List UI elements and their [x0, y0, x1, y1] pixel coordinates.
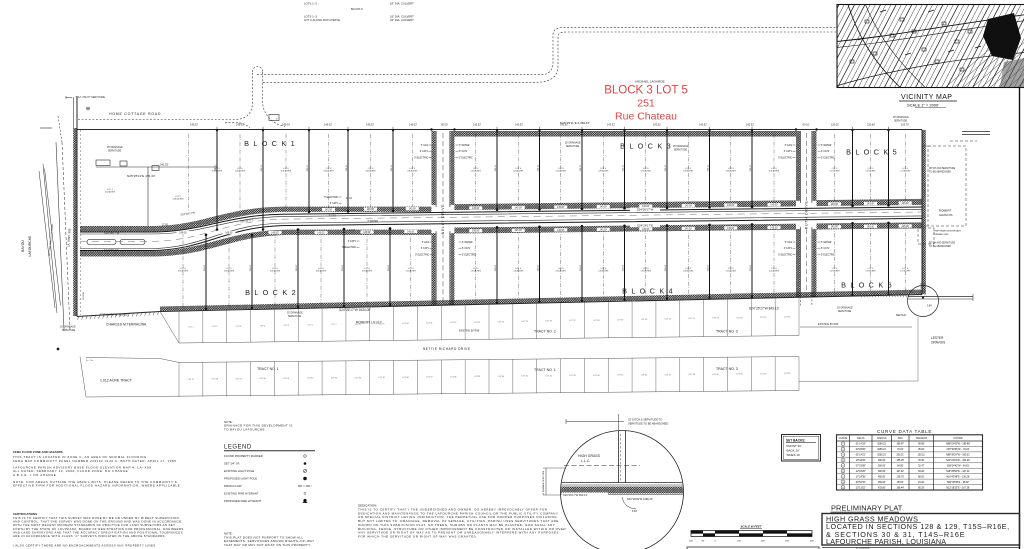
svg-text:17°24'38”: 17°24'38” [856, 476, 866, 478]
svg-text:19°44'32”: 19°44'32” [856, 460, 866, 462]
svg-text:TEMPORARY AGGREGATE: TEMPORARY AGGREGATE [933, 230, 961, 233]
svg-text:B L O C K 3: B L O C K 3 [620, 142, 672, 151]
svg-text:EXISTING FIRE HYDRANT: EXISTING FIRE HYDRANT [224, 492, 259, 496]
svg-text:0.80 ACRES: 0.80 ACRES [769, 270, 780, 273]
svg-text:5' ELECTRIC: 5' ELECTRIC [459, 157, 473, 159]
svg-text:0.80 ACRES: 0.80 ACRES [323, 170, 334, 173]
svg-text:53.92': 53.92' [918, 471, 925, 473]
svg-text:120.02': 120.02' [831, 124, 840, 127]
svg-text:38.03': 38.03' [897, 482, 904, 484]
svg-text:85.29': 85.29' [918, 487, 925, 489]
svg-text:0.80 ACRES: 0.80 ACRES [316, 270, 327, 273]
svg-text:70.04': 70.04' [897, 449, 904, 451]
svg-text:04°52'32”: 04°52'32” [856, 482, 866, 484]
svg-text:145.00': 145.00' [472, 231, 480, 233]
svg-text:LOT 13: LOT 13 [474, 322, 480, 324]
svg-text:0.80 ACRES: 0.80 ACRES [598, 170, 609, 173]
svg-text:145.00': 145.00' [600, 229, 608, 231]
svg-text:LOT 31: LOT 31 [283, 378, 289, 380]
svg-text:LOT 19: LOT 19 [617, 319, 623, 321]
svg-text:145.00': 145.00' [902, 203, 910, 205]
svg-text:LOT 18: LOT 18 [593, 320, 599, 322]
svg-text:145.00': 145.00' [902, 226, 910, 228]
svg-text:136.76': 136.76' [896, 476, 904, 478]
svg-text:LOT 25: LOT 25 [760, 317, 766, 319]
svg-text:155.05': 155.05' [896, 460, 904, 462]
svg-text:145.00': 145.00' [727, 228, 735, 230]
svg-text:0.80 ACRES: 0.80 ACRES [407, 170, 418, 173]
svg-text:145.00': 145.00' [685, 206, 693, 208]
svg-text:N88°39'24”W – 200.21': N88°39'24”W – 200.21' [946, 455, 971, 457]
svg-text:LOT 48: LOT 48 [689, 374, 695, 376]
svg-text:LOT 52: LOT 52 [784, 373, 790, 375]
svg-text:LOT 40: LOT 40 [498, 376, 504, 378]
svg-text:LOT 10: LOT 10 [402, 323, 408, 325]
svg-text:DRAIN FLOW: DRAIN FLOW [224, 484, 242, 488]
svg-text:0.80 ACRES: 0.80 ACRES [270, 270, 281, 273]
svg-text:3,49 0,53° 44’E: 3,49 0,53° 44’E [925, 182, 927, 196]
svg-text:5' ELECTRIC: 5' ELECTRIC [462, 254, 476, 256]
svg-text:145.00': 145.00' [770, 205, 778, 207]
svg-text:LAFOURCHE: LAFOURCHE [28, 235, 32, 257]
svg-text:64.85': 64.85' [897, 466, 904, 468]
svg-text:S24°28'17”E: S24°28'17”E [104, 248, 119, 252]
svg-text:01°14'21”: 01°14'21” [856, 455, 866, 457]
svg-text:LOT 6: LOT 6 [308, 325, 313, 327]
svg-text:I ALSO CERTIFY THERE ARE: I ALSO CERTIFY THERE ARE NO ENCROACHMENT… [13, 544, 156, 548]
svg-text:9.84': 9.84' [927, 306, 932, 308]
svg-text:400': 400' [810, 540, 815, 543]
svg-text:45.16': 45.16' [346, 198, 353, 200]
svg-text:25' DRAINAGE: 25' DRAINAGE [287, 312, 303, 315]
svg-text:145.00': 145.00' [363, 232, 371, 234]
svg-text:254.15': 254.15' [623, 164, 625, 171]
svg-text:145.02': 145.02' [409, 124, 418, 127]
svg-text:LOT 1: LOT 1 [188, 327, 193, 329]
svg-text:25' DRAINAGE: 25' DRAINAGE [107, 146, 123, 149]
svg-text:22°13'52”: 22°13'52” [856, 487, 866, 489]
svg-text:00°26'00”: 00°26'00” [856, 449, 866, 451]
svg-text:18” DIA. CULVERT: 18” DIA. CULVERT [390, 2, 414, 6]
svg-text:1.012 ACRE TRACT: 1.012 ACRE TRACT [100, 379, 133, 383]
svg-text:FOR WHICH THE SERVITUDE OR: FOR WHICH THE SERVITUDE OR RIGHT OF WAY … [358, 534, 478, 538]
svg-text:S24°26'17”W: S24°26'17”W [637, 208, 654, 212]
svg-text:BLOCK 3 LOT 5: BLOCK 3 LOT 5 [604, 85, 688, 97]
svg-text:1.081 ACRES: 1.081 ACRES [172, 198, 184, 201]
svg-text:1.07 ACRES: 1.07 ACRES [900, 170, 911, 173]
svg-text:EXISTING 50' R/W: EXISTING 50' R/W [818, 323, 839, 326]
svg-text:PROPOSED FIRE HYDRANT: PROPOSED FIRE HYDRANT [224, 499, 262, 503]
svg-text:LOT 20: LOT 20 [641, 319, 647, 321]
svg-text:L.L.C.: L.L.C. [581, 459, 590, 463]
svg-text:5' ELECTRIC: 5' ELECTRIC [778, 157, 792, 159]
svg-text:HIGH GRASS: HIGH GRASS [578, 454, 601, 458]
svg-text:145.00': 145.00' [515, 230, 523, 232]
svg-text:N04°36'05”E – 38.02': N04°36'05”E – 38.02' [947, 482, 970, 484]
svg-text:LOT 23: LOT 23 [712, 318, 718, 320]
svg-text:5' WATER: 5' WATER [821, 144, 832, 147]
svg-text:0.80 ACRES: 0.80 ACRES [598, 270, 609, 273]
svg-text:32.47': 32.47' [918, 466, 925, 468]
svg-text:254.15': 254.15' [580, 164, 582, 171]
svg-text:N25°25'11”E 2,359.67’: N25°25'11”E 2,359.67’ [560, 121, 590, 125]
svg-text:142.52': 142.52' [515, 124, 524, 127]
svg-text:5' GAS: 5' GAS [785, 144, 793, 147]
svg-text:25' DRAINAGE: 25' DRAINAGE [673, 145, 689, 148]
svg-text:0.80 ACRES: 0.80 ACRES [683, 270, 694, 273]
svg-text:TRACT NO. 3: TRACT NO. 3 [716, 367, 738, 371]
svg-text:254.15': 254.15' [215, 164, 217, 171]
svg-text:5' ELECTRIC: 5' ELECTRIC [821, 254, 835, 256]
svg-text:LOT 38: LOT 38 [450, 376, 456, 378]
svg-text:145.02': 145.02' [190, 124, 199, 127]
svg-text:LOT 42: LOT 42 [545, 375, 551, 377]
svg-text:BACK 10': BACK 10' [787, 449, 800, 453]
svg-text:N12°18'23”E – 167.39': N12°18'23”E – 167.39' [946, 487, 970, 489]
svg-text:LOT 43: LOT 43 [569, 375, 575, 377]
svg-text:5' WATER: 5' WATER [462, 241, 473, 244]
svg-text:145.00': 145.00' [867, 226, 875, 228]
svg-text:LOT 39: LOT 39 [474, 376, 480, 378]
svg-text:PRELIMINARY PLAT: PRELIMINARY PLAT [831, 504, 903, 513]
svg-text:NELLY DRIVE: NELLY DRIVE [441, 204, 445, 235]
svg-text:25' DRAINAGE SERVITUDE: 25' DRAINAGE SERVITUDE [542, 470, 545, 495]
svg-text:99.98': 99.98' [918, 444, 925, 446]
svg-text:6' CATV: 6' CATV [348, 240, 357, 243]
svg-text:LOT 9: LOT 9 [379, 323, 384, 325]
svg-text:LOT 14: LOT 14 [498, 321, 504, 323]
svg-text:VICINITY MAP: VICINITY MAP [901, 94, 952, 101]
svg-text:60.00': 60.00' [441, 124, 448, 127]
svg-text:LOT 5: LOT 5 [284, 325, 289, 327]
svg-text:THAT MAY OR MAY NOT EXIST: THAT MAY OR MAY NOT EXIST ON THIS PROPER… [224, 543, 311, 547]
svg-text:LOT 44: LOT 44 [593, 375, 599, 377]
svg-text:60.01': 60.01' [803, 124, 810, 127]
svg-text:FRONT 20': FRONT 20' [787, 444, 802, 448]
svg-text:250.00': 250.00' [538, 264, 540, 271]
svg-text:LAFOURCHE PARISH, LOUISIANA: LAFOURCHE PARISH, LOUISIANA [826, 537, 946, 546]
svg-text:6' CATV: 6' CATV [784, 247, 793, 250]
svg-text:0.80 ACRES: 0.80 ACRES [235, 170, 246, 173]
svg-text:SERVITUDE: SERVITUDE [62, 330, 76, 332]
svg-text:5' ELECTRIC: 5' ELECTRIC [324, 197, 338, 199]
svg-text:145.00': 145.00' [685, 228, 693, 230]
svg-text:D— 7a: D— 7a [86, 360, 94, 362]
svg-text:200.21': 200.21' [896, 455, 904, 457]
svg-text:5' WATER: 5' WATER [459, 144, 470, 147]
svg-text:500.00': 500.00' [878, 471, 886, 473]
svg-text:NETTIE RICHARD DRIVE: NETTIE RICHARD DRIVE [423, 347, 470, 351]
svg-text:6' CATV: 6' CATV [421, 247, 430, 250]
svg-text:SCALE 1” = 2000': SCALE 1” = 2000' [907, 103, 939, 108]
svg-text:25' DRAINAGE: 25' DRAINAGE [893, 116, 909, 119]
svg-text:1.07 ACRES: 1.07 ACRES [900, 270, 911, 273]
svg-text:15' DRAINAGE: 15' DRAINAGE [60, 326, 76, 329]
svg-text:6' CATV: 6' CATV [459, 150, 468, 153]
svg-text:0.80 ACRES: 0.80 ACRES [641, 170, 652, 173]
svg-text:LOT 37: LOT 37 [426, 377, 432, 379]
svg-text:LOT 11: LOT 11 [426, 323, 432, 325]
svg-text:250.00': 250.00' [342, 264, 344, 271]
svg-text:0.80 ACRES: 0.80 ACRES [769, 170, 780, 173]
svg-text:01°14'19”: 01°14'19” [856, 444, 866, 446]
svg-text:254.15': 254.15' [346, 164, 348, 171]
svg-text:100.11': 100.11' [918, 455, 926, 457]
svg-text:0.80 ACRES: 0.80 ACRES [362, 270, 373, 273]
svg-text:27.00': 27.00' [162, 225, 169, 227]
svg-text:0.80 ACRES: 0.80 ACRES [683, 170, 694, 173]
svg-text:LOT 3 ALONG RUTH DRIVE: LOT 3 ALONG RUTH DRIVE [304, 18, 340, 22]
svg-text:1.07 ACRES: 1.07 ACRES [865, 270, 876, 273]
svg-text:A.B.F.E. = NO CHANGE: A.B.F.E. = NO CHANGE [13, 473, 56, 477]
svg-text:341.33': 341.33' [160, 163, 169, 167]
svg-text:6' CATV: 6' CATV [420, 150, 429, 153]
svg-text:LOT 7: LOT 7 [331, 324, 336, 326]
svg-text:N88°19'43”W – 199.98': N88°19'43”W – 199.98' [946, 444, 971, 446]
svg-text:LOT 16: LOT 16 [545, 321, 551, 323]
svg-text:8.84': 8.84' [632, 510, 638, 513]
svg-text:145.00': 145.00' [179, 233, 187, 235]
svg-text:145.00': 145.00' [770, 227, 778, 229]
svg-text:ARE IN ACCORDANCE WITH CLA: ARE IN ACCORDANCE WITH CLASS “C” SURVEYS… [13, 534, 166, 538]
svg-text:N87°29'35”W – 70.04': N87°29'35”W – 70.04' [947, 449, 970, 451]
svg-text:254.15': 254.15' [495, 164, 497, 171]
svg-text:5' ELECTRIC: 5' ELECTRIC [415, 254, 429, 256]
svg-text:145.00': 145.00' [282, 124, 291, 127]
svg-text:0.80 ACRES: 0.80 ACRES [281, 170, 292, 173]
svg-text:HOME COTTAGE ROAD: HOME COTTAGE ROAD [109, 112, 161, 116]
svg-text:LOT 49: LOT 49 [712, 374, 718, 376]
svg-text:1.07 ACRES: 1.07 ACRES [829, 270, 840, 273]
svg-text:142.52': 142.52' [653, 124, 662, 127]
svg-text:BAYOU: BAYOU [21, 240, 25, 252]
svg-text:250.00': 250.00' [708, 264, 710, 271]
svg-text:DITCH AND SERVITUDE: DITCH AND SERVITUDE [929, 167, 956, 170]
svg-text:142.52': 142.52' [607, 124, 616, 127]
svg-text:78.30': 78.30' [918, 460, 925, 462]
svg-text:SERVITUDE: SERVITUDE [674, 149, 688, 151]
svg-text:450.00': 450.00' [878, 476, 886, 478]
svg-text:60' R/W: 60' R/W [83, 291, 85, 300]
svg-text:LOT 24: LOT 24 [736, 317, 742, 319]
svg-text:CURVE: CURVE [839, 437, 848, 440]
svg-text:LOT 32: LOT 32 [307, 378, 313, 380]
svg-text:254.15': 254.15' [708, 164, 710, 171]
svg-text:433.80': 433.80' [878, 487, 886, 489]
svg-text:145.00': 145.00' [867, 203, 875, 205]
svg-text:9256.21': 9256.21' [877, 449, 886, 451]
svg-text:S24°18'39”W 1289.40’: S24°18'39”W 1289.40’ [627, 497, 653, 501]
svg-text:23' DITCH & SERVITUDE TO: 23' DITCH & SERVITUDE TO [628, 418, 662, 422]
svg-text:LOT 15: LOT 15 [522, 321, 528, 323]
svg-text:100': 100' [737, 541, 742, 543]
svg-text:S18°45'56”W – 107.21': S18°45'56”W – 107.21' [946, 471, 970, 473]
svg-text:LOT 46: LOT 46 [641, 375, 647, 377]
svg-text:4.04 ACRES: 4.04 ACRES [105, 191, 116, 194]
svg-text:251: 251 [637, 98, 655, 110]
svg-text:DELTA: DELTA [857, 437, 865, 440]
svg-text:EFFECTIVE FIRM FOR ADDITION: EFFECTIVE FIRM FOR ADDITIONAL FLOOD HAZA… [13, 484, 180, 488]
svg-text:B L O C K 4: B L O C K 4 [622, 287, 674, 296]
svg-text:6' CATV: 6' CATV [330, 202, 339, 205]
svg-text:0.80 ACRES: 0.80 ACRES [513, 170, 524, 173]
svg-text:LOT 21: LOT 21 [665, 319, 671, 321]
svg-text:SIDES 10': SIDES 10' [787, 453, 801, 457]
svg-text:254.15': 254.15' [261, 164, 263, 171]
svg-text:5' GAS: 5' GAS [422, 241, 430, 244]
svg-text:EXISTING 50' R/W: EXISTING 50' R/W [459, 330, 480, 333]
svg-text:145.00': 145.00' [831, 204, 839, 206]
svg-text:SERVITUDE: SERVITUDE [566, 146, 580, 148]
svg-text:5' WATER: 5' WATER [368, 220, 379, 223]
svg-text:S24°26'17”W 843.13’: S24°26'17”W 843.13’ [563, 493, 588, 497]
svg-text:120.60': 120.60' [867, 124, 876, 127]
svg-text:0.80 ACRES: 0.80 ACRES [556, 170, 567, 173]
svg-text:9256.21': 9256.21' [877, 455, 886, 457]
svg-text:107.42': 107.42' [896, 471, 904, 473]
svg-text:1.07 ACRES: 1.07 ACRES [829, 170, 840, 173]
svg-text:24” DIA. CULVERT: 24” DIA. CULVERT [390, 18, 414, 22]
svg-text:GRAVOIS: GRAVOIS [939, 213, 952, 217]
svg-text:0.80 ACRES: 0.80 ACRES [212, 170, 223, 173]
svg-text:S24°26'17”W 1634.08’: S24°26'17”W 1634.08’ [339, 308, 371, 312]
svg-text:LOT 45: LOT 45 [617, 375, 623, 377]
svg-text:254.15': 254.15' [307, 164, 309, 171]
svg-text:LOT 26: LOT 26 [784, 317, 790, 319]
svg-text:145.02': 145.02' [236, 124, 245, 127]
svg-text:0.80 ACRES: 0.80 ACRES [726, 270, 737, 273]
svg-text:B L O C K 5: B L O C K 5 [846, 148, 898, 157]
svg-text:TRACT NO. 1: TRACT NO. 1 [534, 368, 556, 372]
svg-text:25' DRAINAGE: 25' DRAINAGE [565, 142, 581, 145]
svg-text:FEMA MAP COMMUNITY PANEL N: FEMA MAP COMMUNITY PANEL NUMBER 225202 0… [13, 459, 176, 463]
svg-text:FEMA FLOOD ZONE AND HAZARD: FEMA FLOOD ZONE AND HAZARDS [13, 450, 63, 454]
svg-text:17.04': 17.04' [349, 230, 356, 232]
svg-text:145.00': 145.00' [407, 231, 415, 233]
svg-text:6' CATV: 6' CATV [784, 150, 793, 153]
svg-text:MICHAEL LAGARDE: MICHAEL LAGARDE [635, 80, 664, 84]
svg-text:Rue Chateau: Rue Chateau [615, 111, 677, 123]
svg-text:LOT 33: LOT 33 [331, 378, 337, 380]
svg-text:5' ELECTRIC: 5' ELECTRIC [778, 254, 792, 256]
svg-text:LOT 50: LOT 50 [736, 374, 742, 376]
svg-text:142.52': 142.52' [699, 124, 708, 127]
svg-text:145.00': 145.00' [225, 233, 233, 235]
svg-text:LESTER: LESTER [931, 336, 944, 340]
svg-text:250.00': 250.00' [296, 264, 298, 271]
svg-text:68.92': 68.92' [918, 476, 925, 478]
svg-text:199.87': 199.87' [896, 444, 904, 446]
svg-text:6' CATV: 6' CATV [821, 247, 830, 250]
svg-text:19.02': 19.02' [918, 482, 925, 484]
svg-text:6' CATV: 6' CATV [462, 247, 471, 250]
svg-text:300': 300' [785, 541, 790, 543]
svg-text:SERVITUDE: SERVITUDE [108, 150, 122, 152]
svg-text:250.00': 250.00' [495, 264, 497, 271]
svg-text:SCALE IN FEET: SCALE IN FEET [741, 525, 762, 529]
svg-text:0.80 ACRES: 0.80 ACRES [471, 270, 482, 273]
svg-text:145.00': 145.00' [367, 209, 375, 211]
svg-text:LOT 27: LOT 27 [188, 379, 194, 381]
svg-text:FOUND PROPERTY MARKER: FOUND PROPERTY MARKER [224, 454, 263, 458]
svg-text:5' GAS: 5' GAS [785, 241, 793, 244]
svg-text:LOT 51: LOT 51 [760, 373, 766, 375]
svg-text:TRACT NO. 3: TRACT NO. 3 [716, 330, 738, 334]
svg-text:254.15': 254.15' [750, 164, 752, 171]
svg-text:SET 3/4” I.R.: SET 3/4” I.R. [224, 462, 240, 466]
svg-text:145.00': 145.00' [515, 207, 523, 209]
svg-text:LOT 22: LOT 22 [689, 318, 695, 320]
svg-text:12' UTILITY SERVITUDE: 12' UTILITY SERVITUDE [78, 96, 105, 99]
svg-text:ARC: ARC [898, 437, 903, 440]
svg-text:100': 100' [689, 541, 694, 543]
svg-text:0.80 ACRES: 0.80 ACRES [406, 270, 417, 273]
svg-text:145.00': 145.00' [727, 205, 735, 207]
svg-text:LOTS 1–3: LOTS 1–3 [304, 2, 317, 6]
svg-text:LOT 3: LOT 3 [236, 326, 241, 328]
svg-text:0.80 ACRES: 0.80 ACRES [726, 170, 737, 173]
svg-text:145.00': 145.00' [325, 210, 333, 212]
svg-text:TRACT NO. 1: TRACT NO. 1 [257, 367, 279, 371]
svg-text:B L O C K 1: B L O C K 1 [244, 139, 296, 148]
svg-text:LOT 8: LOT 8 [355, 324, 360, 326]
svg-text:145.00': 145.00' [317, 232, 325, 234]
svg-text:25' DRAINAGE: 25' DRAINAGE [837, 307, 853, 310]
svg-text:0.80 ACRES: 0.80 ACRES [513, 270, 524, 273]
svg-text:145.02': 145.02' [366, 124, 375, 127]
svg-text:0.80 ACRES: 0.80 ACRES [178, 270, 189, 273]
svg-text:142.52': 142.52' [746, 124, 755, 127]
svg-text:145.00': 145.00' [557, 230, 565, 232]
svg-text:145.00': 145.00' [271, 233, 279, 235]
svg-text:LOT 17: LOT 17 [569, 320, 575, 322]
svg-text:5' GAS: 5' GAS [421, 144, 429, 147]
svg-text:S24°26'17”E: S24°26'17”E [637, 224, 653, 228]
svg-text:SERVITUDE: SERVITUDE [894, 120, 908, 122]
svg-text:LOT 34: LOT 34 [355, 377, 361, 379]
svg-text:5' WATER: 5' WATER [821, 241, 832, 244]
svg-text:LOT 12: LOT 12 [450, 322, 456, 324]
svg-text:SET BACKS:: SET BACKS: [786, 439, 805, 443]
svg-text:07°23'08”: 07°23'08” [856, 466, 866, 468]
svg-text:LOT 41: LOT 41 [522, 376, 528, 378]
svg-text:B L O C K 2: B L O C K 2 [245, 288, 297, 297]
svg-text:S24°28'17”W: S24°28'17”W [104, 231, 120, 235]
svg-text:145.02': 145.02' [324, 124, 333, 127]
svg-text:LOT 2: LOT 2 [212, 326, 217, 328]
svg-text:LOT 35: LOT 35 [379, 377, 385, 379]
svg-text:B L O C K 6: B L O C K 6 [841, 281, 893, 290]
svg-text:0.80 ACRES: 0.80 ACRES [641, 270, 652, 273]
svg-text:S14°34'01”W – 154.29': S14°34'01”W – 154.29' [946, 460, 970, 462]
svg-text:TO BE ABANDONED: TO BE ABANDONED [929, 245, 951, 248]
svg-text:LOT 29: LOT 29 [235, 378, 241, 380]
svg-text:TO BAYOU LAFOURCHE: TO BAYOU LAFOURCHE [224, 427, 265, 431]
svg-text:103.79': 103.79' [901, 124, 910, 127]
svg-text:0.80 ACRES: 0.80 ACRES [556, 270, 567, 273]
svg-text:LOT 28: LOT 28 [212, 379, 218, 381]
svg-text:S24°26'17”W 843.13’: S24°26'17”W 843.13’ [749, 307, 779, 311]
svg-text:S08°24'42”W – 64.81': S08°24'42”W – 64.81' [947, 466, 970, 468]
svg-text:0.80 ACRES: 0.80 ACRES [224, 270, 235, 273]
svg-text:254.15': 254.15' [538, 164, 540, 171]
svg-text:12°18'26”: 12°18'26” [856, 471, 866, 473]
svg-text:250.00': 250.00' [250, 264, 252, 271]
svg-text:N10°43'48”E – 136.26': N10°43'48”E – 136.26' [946, 476, 970, 478]
svg-text:GRAVOIS: GRAVOIS [931, 341, 945, 345]
svg-text:9256.21': 9256.21' [877, 444, 886, 446]
svg-text:250.00': 250.00' [388, 264, 390, 271]
